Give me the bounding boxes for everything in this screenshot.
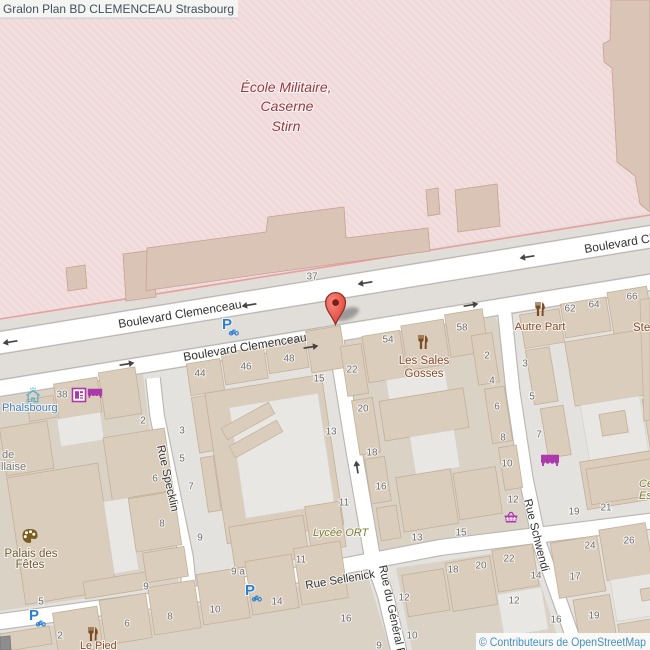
svg-text:11: 11 — [339, 498, 350, 509]
svg-text:5: 5 — [179, 454, 185, 465]
svg-text:Les Sales: Les Sales — [399, 355, 450, 367]
svg-text:17: 17 — [569, 572, 581, 583]
svg-text:11: 11 — [296, 555, 307, 566]
svg-text:37: 37 — [306, 272, 318, 283]
svg-text:22: 22 — [346, 365, 358, 376]
svg-text:46: 46 — [240, 362, 252, 373]
svg-text:20: 20 — [357, 404, 369, 415]
svg-text:48: 48 — [283, 354, 295, 365]
svg-text:Cent: Cent — [639, 478, 650, 490]
svg-text:58: 58 — [456, 323, 468, 334]
svg-text:9: 9 — [376, 641, 382, 650]
svg-text:Gralon Plan BD CLEMENCEAU Stra: Gralon Plan BD CLEMENCEAU Strasbourg — [3, 2, 234, 16]
svg-text:Fêtes: Fêtes — [16, 559, 45, 571]
svg-text:2: 2 — [140, 416, 146, 427]
svg-text:24: 24 — [584, 541, 596, 552]
svg-text:llaise: llaise — [1, 461, 26, 473]
svg-text:44: 44 — [194, 369, 206, 380]
svg-text:Esca: Esca — [639, 490, 650, 502]
svg-text:Le Pied: Le Pied — [80, 640, 117, 650]
svg-text:Caserne: Caserne — [261, 98, 314, 114]
svg-text:10: 10 — [501, 459, 513, 470]
svg-text:Phalsbourg: Phalsbourg — [2, 402, 58, 414]
svg-text:18: 18 — [447, 565, 459, 576]
svg-text:P: P — [245, 582, 255, 599]
svg-text:66: 66 — [626, 292, 638, 303]
svg-text:3: 3 — [179, 426, 185, 437]
svg-text:Lycée ORT: Lycée ORT — [313, 527, 370, 539]
svg-text:5: 5 — [529, 392, 535, 403]
svg-text:École Militaire,: École Militaire, — [240, 79, 331, 95]
svg-text:3: 3 — [522, 359, 528, 370]
svg-text:14: 14 — [271, 597, 283, 608]
svg-text:6: 6 — [494, 402, 500, 413]
svg-text:62: 62 — [564, 304, 576, 315]
svg-text:9: 9 — [143, 582, 149, 593]
svg-text:54: 54 — [382, 335, 394, 346]
svg-text:13: 13 — [411, 533, 423, 544]
svg-text:8: 8 — [167, 612, 173, 623]
svg-text:21: 21 — [600, 503, 612, 514]
svg-text:19: 19 — [568, 507, 580, 518]
svg-text:15: 15 — [455, 528, 467, 539]
svg-text:15: 15 — [313, 374, 325, 385]
svg-text:9 a: 9 a — [231, 567, 245, 578]
svg-text:9: 9 — [197, 533, 203, 544]
svg-text:10: 10 — [406, 631, 418, 642]
svg-text:de: de — [2, 449, 14, 461]
svg-text:16: 16 — [550, 615, 562, 626]
svg-text:19: 19 — [588, 611, 600, 622]
svg-text:7: 7 — [188, 482, 194, 493]
svg-text:16: 16 — [340, 614, 352, 625]
svg-text:8: 8 — [500, 433, 506, 444]
svg-text:© Contributeurs de OpenStreetM: © Contributeurs de OpenStreetMap — [479, 635, 646, 649]
svg-text:20: 20 — [475, 561, 487, 572]
svg-text:6: 6 — [124, 619, 130, 630]
svg-text:26: 26 — [623, 536, 635, 547]
svg-text:22: 22 — [503, 554, 515, 565]
svg-text:12: 12 — [508, 596, 520, 607]
svg-text:12: 12 — [398, 593, 410, 604]
svg-text:16: 16 — [375, 482, 387, 493]
svg-text:7: 7 — [536, 430, 542, 441]
svg-text:8: 8 — [159, 519, 165, 530]
svg-text:Gosses: Gosses — [405, 368, 444, 380]
svg-text:64: 64 — [588, 300, 600, 311]
svg-text:14: 14 — [530, 571, 542, 582]
svg-text:6: 6 — [152, 474, 158, 485]
svg-text:4: 4 — [489, 376, 495, 387]
svg-text:13: 13 — [325, 427, 337, 438]
svg-text:Steakhouse: Steakhouse — [633, 322, 650, 334]
svg-text:Autre Part: Autre Part — [515, 321, 567, 333]
svg-text:P: P — [29, 607, 39, 624]
svg-text:P: P — [222, 316, 232, 333]
svg-text:12: 12 — [507, 495, 519, 506]
svg-text:18: 18 — [366, 448, 378, 459]
svg-text:10: 10 — [209, 605, 221, 616]
svg-text:Stirn: Stirn — [272, 118, 301, 134]
svg-text:5: 5 — [38, 597, 44, 608]
svg-text:2: 2 — [57, 631, 63, 642]
svg-text:2: 2 — [484, 351, 490, 362]
svg-text:38: 38 — [56, 390, 68, 401]
